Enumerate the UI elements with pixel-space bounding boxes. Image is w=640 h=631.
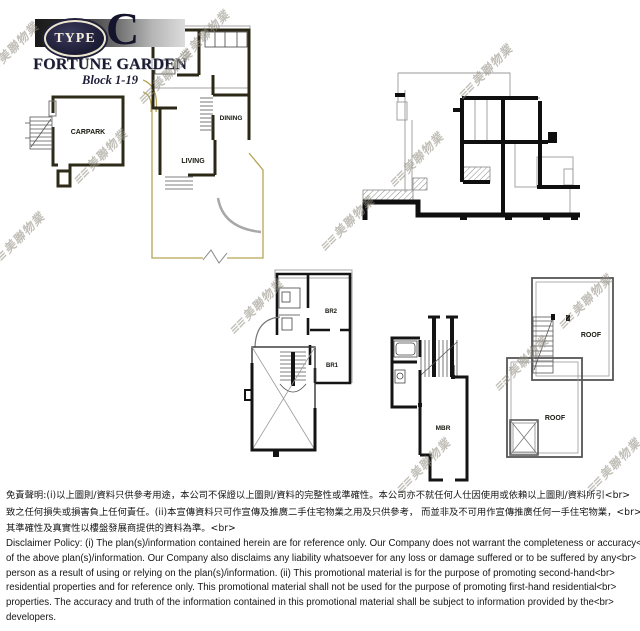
break-line [203, 250, 227, 263]
disclaimer-en-line-3: person as a result of using or relying o… [6, 567, 638, 582]
door-jambs [418, 375, 455, 407]
floor-plan-sheet: TYPE C FORTUNE GARDEN Block 1-19 CARPARK [0, 0, 640, 631]
br2-label: BR2 [325, 309, 338, 315]
section-hatched-areas [363, 167, 490, 202]
bedroom-walls [277, 274, 350, 383]
carpark-walls [53, 97, 123, 186]
disclaimer-en-line-5: properties. The accuracy and truth of th… [6, 596, 638, 611]
carpark-floor-plan: CARPARK [25, 83, 145, 218]
br1-label: BR1 [326, 363, 339, 369]
disclaimer-zh-line-2: 致之任何損失或損害負上任何責任。(ii)本宣傳資料只可作宣傳及推廣二手住宅物業之… [6, 505, 638, 522]
roof-void-box [510, 420, 538, 455]
disclaimer-en-line-2: of the above plan(s)/information. Our Co… [6, 552, 638, 567]
building-section [335, 70, 585, 220]
master-bedroom-floor-plan: MBR [383, 295, 483, 485]
bathroom-fixtures [279, 288, 300, 330]
entry-steps [165, 177, 193, 189]
type-logo: TYPE C FORTUNE GARDEN Block 1-19 [30, 12, 190, 86]
carpark-label: CARPARK [71, 129, 105, 136]
type-letter: C [106, 6, 139, 52]
ground-stairs [200, 98, 213, 130]
roof-upper-walls [532, 278, 613, 380]
disclaimer-en-line-4: residential properties and for reference… [6, 581, 638, 596]
estate-name: FORTUNE GARDEN [30, 56, 190, 74]
disclaimer-chinese: 免責聲明:(i)以上圖則/資料只供參考用途，本公司不保證以上圖則/資料的完整性或… [6, 488, 638, 538]
bedroom-floor-plan: BR2 BR1 [238, 268, 368, 463]
curved-garden-wall [218, 198, 261, 232]
disclaimer-en-line-6: developers. [6, 611, 638, 626]
type-label: TYPE [54, 31, 95, 47]
disclaimer-zh-line-1: 免責聲明:(i)以上圖則/資料只供參考用途，本公司不保證以上圖則/資料的完整性或… [6, 488, 638, 505]
master-walls [392, 338, 467, 480]
living-label: LIVING [181, 158, 205, 165]
watermark-bars-icon: ≡≡ [0, 57, 2, 81]
disclaimer-zh-line-3: 其準確性及真實性以樓盤發展商提供的資料為準。<br> [6, 521, 638, 538]
mbr-label: MBR [436, 425, 451, 432]
roof-plan: ROOF ROOF [502, 270, 640, 465]
dining-label: DINING [220, 115, 243, 122]
roof-door-jambs [551, 314, 570, 321]
block-label: Block 1-19 [30, 73, 190, 88]
watermark-bars-icon: ≡≡ [0, 247, 8, 271]
void-room [245, 347, 315, 457]
type-ellipse: TYPE [44, 20, 106, 57]
carpark-stairs [30, 117, 52, 149]
bedroom-overhang-outline [275, 270, 352, 383]
watermark-bars-icon: ≡≡ [318, 231, 338, 255]
section-slabs-columns [395, 95, 580, 215]
disclaimer-en-line-1: Disclaimer Policy: (i) The plan(s)/infor… [6, 537, 638, 552]
roof-upper-label: ROOF [581, 332, 602, 339]
disclaimer-english: Disclaimer Policy: (i) The plan(s)/infor… [6, 537, 638, 626]
roof-lower-label: ROOF [545, 415, 566, 422]
